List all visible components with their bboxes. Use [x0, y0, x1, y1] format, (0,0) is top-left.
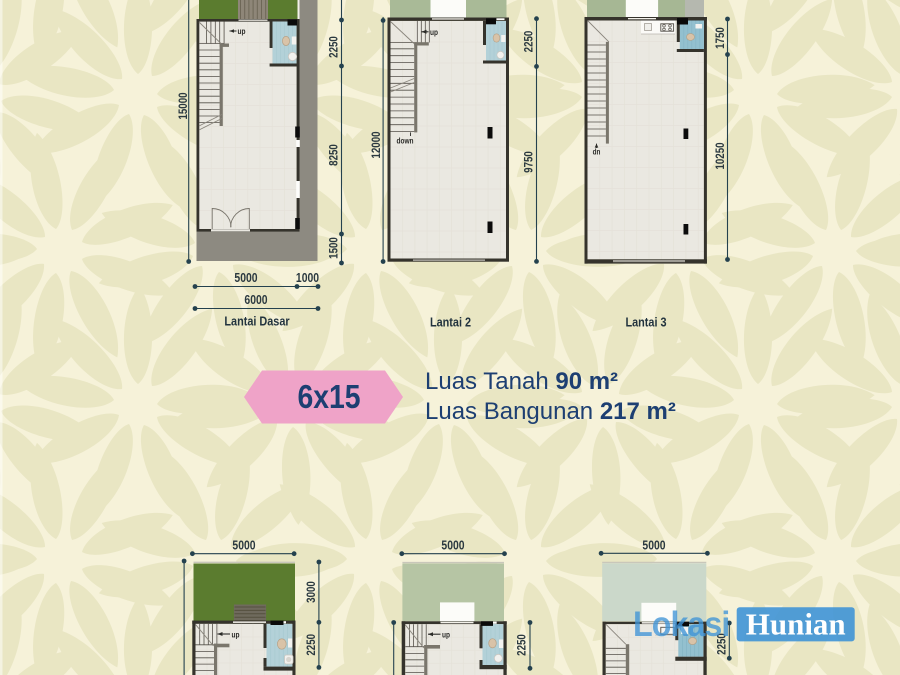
- svg-text:1500: 1500: [328, 237, 341, 259]
- svg-text:dn: dn: [593, 147, 601, 157]
- svg-text:6000: 6000: [244, 293, 268, 307]
- svg-text:9750: 9750: [523, 151, 536, 173]
- svg-text:Lantai 3: Lantai 3: [625, 315, 666, 330]
- svg-text:up: up: [442, 630, 450, 640]
- svg-text:2250: 2250: [305, 634, 318, 656]
- svg-text:down: down: [396, 136, 414, 146]
- svg-text:up: up: [232, 630, 240, 640]
- svg-text:Lokasi: Lokasi: [633, 606, 729, 645]
- svg-text:2250: 2250: [516, 634, 529, 656]
- svg-text:1000: 1000: [296, 271, 320, 285]
- svg-text:Luas Tanah 90 m²: Luas Tanah 90 m²: [425, 368, 618, 395]
- svg-text:12000: 12000: [370, 131, 383, 158]
- svg-text:5000: 5000: [232, 538, 256, 552]
- svg-text:up: up: [430, 27, 438, 37]
- svg-text:up: up: [238, 26, 246, 36]
- svg-text:10250: 10250: [714, 142, 727, 169]
- svg-text:Lantai Dasar: Lantai Dasar: [224, 314, 290, 329]
- svg-text:6x15: 6x15: [297, 378, 360, 416]
- svg-text:5000: 5000: [234, 271, 258, 285]
- svg-text:3000: 3000: [305, 581, 318, 603]
- svg-text:2250: 2250: [328, 36, 341, 58]
- svg-text:1750: 1750: [714, 27, 727, 49]
- svg-text:Hunian: Hunian: [746, 607, 846, 642]
- svg-text:5000: 5000: [441, 538, 465, 552]
- svg-text:Lantai 2: Lantai 2: [430, 315, 471, 330]
- svg-text:2250: 2250: [523, 31, 536, 53]
- svg-text:5000: 5000: [642, 538, 666, 552]
- svg-text:8250: 8250: [328, 144, 341, 166]
- svg-text:Luas Bangunan 217 m²: Luas Bangunan 217 m²: [425, 398, 676, 425]
- svg-text:15000: 15000: [177, 92, 190, 119]
